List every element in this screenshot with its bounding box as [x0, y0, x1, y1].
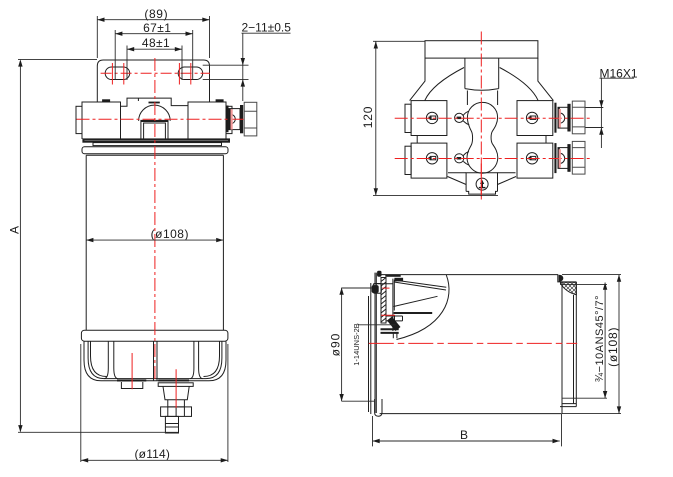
svg-text:B: B — [460, 428, 468, 442]
svg-text:48±1: 48±1 — [142, 36, 170, 50]
svg-text:120: 120 — [361, 106, 375, 128]
svg-text:A: A — [8, 226, 22, 234]
svg-text:2−11±0.5: 2−11±0.5 — [242, 21, 292, 35]
svg-text:(ø114): (ø114) — [134, 447, 170, 461]
svg-text:1-14UNS-2B: 1-14UNS-2B — [352, 323, 361, 366]
svg-text:(89): (89) — [144, 7, 168, 21]
svg-text:(ø108): (ø108) — [151, 227, 189, 241]
svg-text:(ø108): (ø108) — [606, 327, 620, 367]
svg-text:¾−10ANS45°/7°: ¾−10ANS45°/7° — [594, 295, 606, 382]
svg-text:ø90: ø90 — [328, 333, 342, 357]
svg-text:67±1: 67±1 — [143, 21, 171, 35]
